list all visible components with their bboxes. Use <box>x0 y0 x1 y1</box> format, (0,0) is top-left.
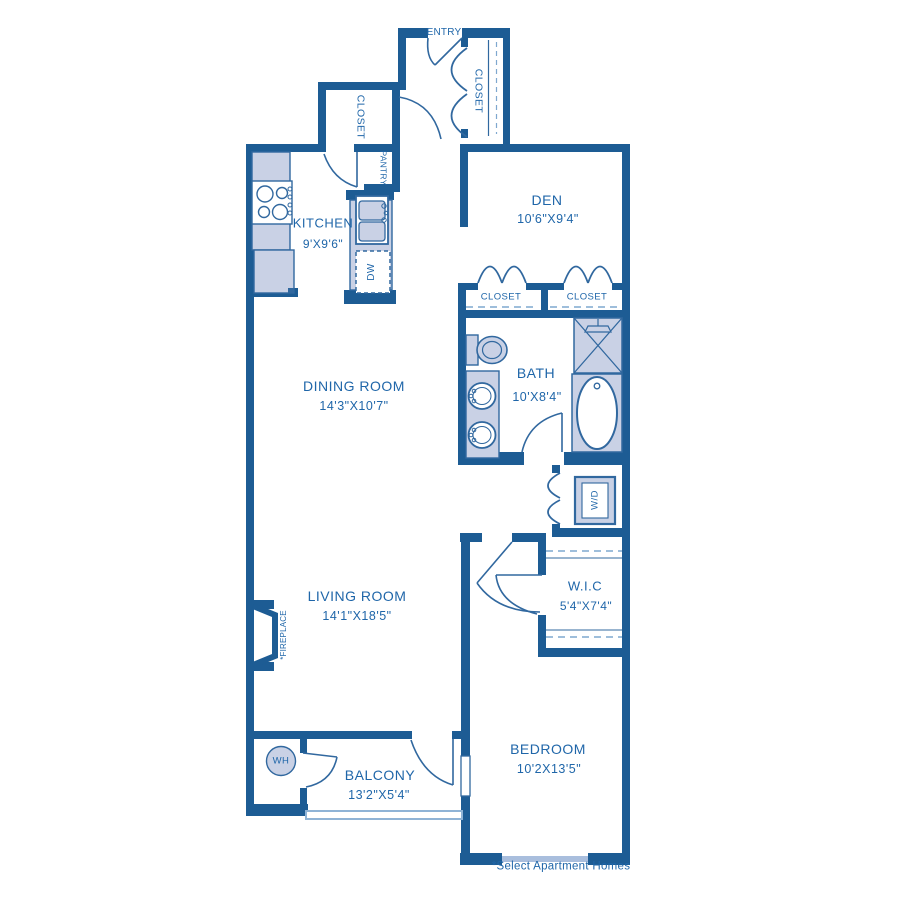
bedroom-dims: 10'2X13'5" <box>517 763 581 776</box>
wall-segment <box>612 283 624 290</box>
wall-segment <box>300 739 307 753</box>
wall-segment <box>300 788 307 806</box>
floor-plan: ENTRY CLOSET CLOSET PANTRY KITCHEN 9'X9'… <box>0 0 900 900</box>
washer-dryer-label: W/D <box>590 490 600 510</box>
floor-plan-drawing <box>0 0 900 900</box>
wic-dims: 5'4"X7'4" <box>560 600 612 612</box>
wall-segment <box>552 528 630 537</box>
bedroom-door-swing <box>477 542 540 612</box>
dining-room-label: DINING ROOM <box>303 379 405 393</box>
entry-closet-label: CLOSET <box>473 69 484 113</box>
wall-segment <box>564 452 630 465</box>
entry-door-swing <box>428 38 462 65</box>
den-closet-left-bifold-door <box>478 267 526 284</box>
entry-hall-door-swing <box>399 97 441 139</box>
wall-segment <box>392 90 400 192</box>
fireplace-label: *FIREPLACE <box>280 610 288 660</box>
water-heater-label: WH <box>273 756 290 766</box>
wall-segment <box>246 731 412 739</box>
wall-segment <box>622 144 630 865</box>
wall-segment <box>354 144 400 152</box>
den-dims: 10'6"X9'4" <box>517 213 579 226</box>
wh-closet-door-swing <box>303 753 337 787</box>
wall-segment <box>460 144 630 152</box>
den-closet-left-label: CLOSET <box>481 292 521 302</box>
fireplace-icon <box>253 606 275 665</box>
wall-segment <box>452 731 462 739</box>
pantry-label: PANTRY <box>379 151 388 186</box>
wall-segment <box>318 82 406 90</box>
kitchen-label: KITCHEN <box>293 217 354 230</box>
balcony-label: BALCONY <box>345 768 415 782</box>
wall-segment <box>458 310 630 318</box>
vanity-sinks-icon <box>466 371 499 458</box>
wall-segment <box>398 28 406 90</box>
living-room-label: LIVING ROOM <box>308 589 407 603</box>
den-closet-right-bifold-door <box>564 267 612 284</box>
balcony-door-swing <box>411 739 453 785</box>
shower-icon <box>574 318 622 373</box>
wall-segment <box>246 804 308 816</box>
bedroom-label: BEDROOM <box>510 742 586 756</box>
bath-label: BATH <box>517 366 555 380</box>
living-room-dims: 14'1"X18'5" <box>322 610 391 623</box>
wic-door-swing <box>496 575 542 614</box>
den-closet-right-label: CLOSET <box>567 292 607 302</box>
refrigerator-icon <box>254 250 294 293</box>
wall-segment <box>538 537 546 575</box>
wic-label: W.I.C <box>568 580 602 593</box>
bedroom-balcony-window <box>461 756 470 796</box>
wall-segment <box>461 38 468 47</box>
dishwasher-label: DW <box>367 263 377 280</box>
dining-room-dims: 14'3"X10'7" <box>319 400 388 413</box>
wall-segment <box>246 144 324 152</box>
kitchen-dims: 9'X9'6" <box>303 238 343 250</box>
wall-segment <box>538 648 630 657</box>
wall-segment <box>462 28 510 38</box>
balcony-dims: 13'2"X5'4" <box>348 789 410 802</box>
balcony-railing <box>306 811 462 819</box>
entry-label: ENTRY <box>427 28 462 38</box>
kitchen-sink-icon <box>356 196 388 244</box>
wall-segment <box>512 533 546 542</box>
bath-fixtures <box>466 318 622 458</box>
footnote: *Select Apartment Homes <box>492 861 631 873</box>
wall-segment <box>318 82 326 152</box>
wall-segment <box>460 144 468 227</box>
hall-closet-label: CLOSET <box>355 95 366 139</box>
bath-door-swing <box>522 413 562 452</box>
wall-segment <box>503 28 510 145</box>
entry-closet-bifold-door <box>452 48 468 137</box>
wall-segment <box>552 465 560 473</box>
den-label: DEN <box>531 193 562 207</box>
wall-segment <box>458 283 478 290</box>
toilet-icon <box>466 335 507 365</box>
bath-dims: 10'X8'4" <box>512 391 561 404</box>
stove-icon <box>252 181 292 224</box>
bathtub-icon <box>572 374 622 452</box>
wall-segment <box>461 533 470 756</box>
hall-closet-door-swing <box>324 152 357 187</box>
wd-closet-bifold-door <box>548 473 560 524</box>
